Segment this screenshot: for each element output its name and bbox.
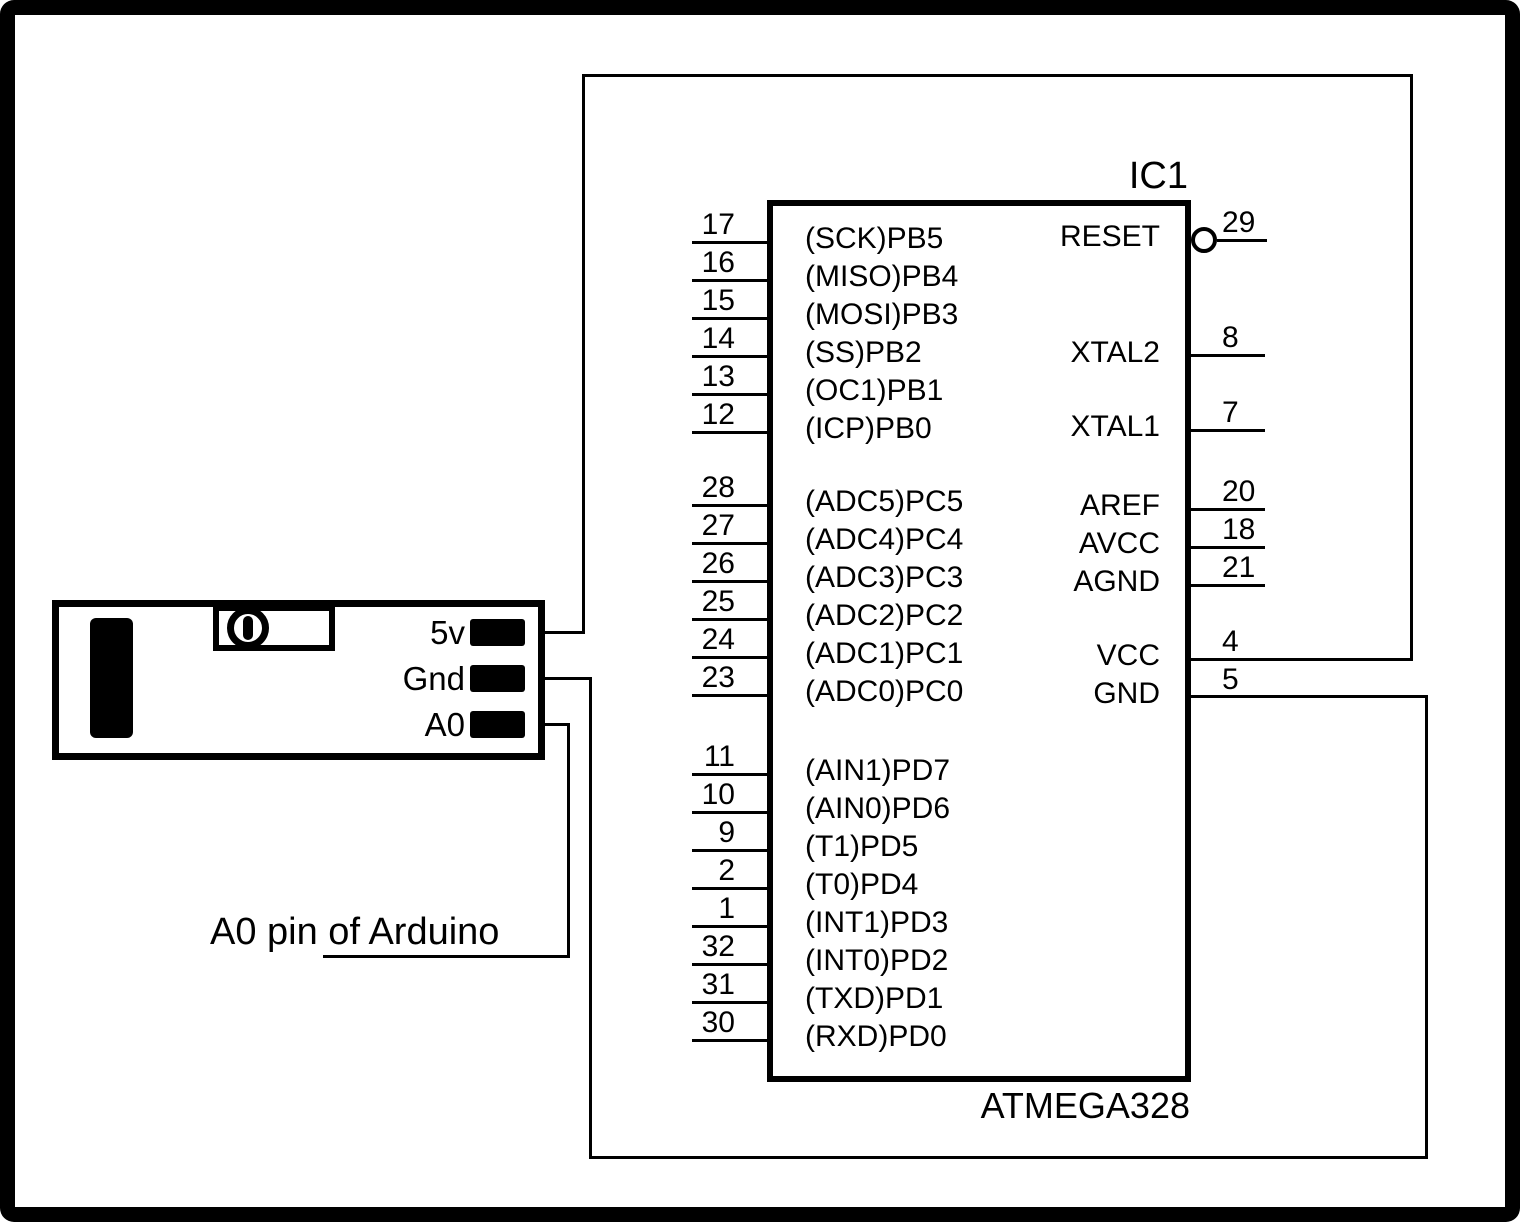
pin-line-1 (692, 925, 767, 928)
pin-number: 20 (1222, 477, 1312, 507)
pin-label: (INT0)PD2 (805, 943, 948, 979)
pin-number: 10 (655, 780, 735, 810)
potentiometer-slot-icon (243, 616, 253, 640)
pin-line-9 (692, 849, 767, 852)
wire-gnd-vertical-right (1425, 696, 1428, 1159)
module-pin-label-5v: 5v (315, 613, 465, 653)
ic-part-number: ATMEGA328 (790, 1086, 1190, 1128)
pin-label: (T0)PD4 (805, 867, 918, 903)
pin-number: 30 (655, 1008, 735, 1038)
pin-number: 29 (1222, 208, 1312, 238)
pin-line-10 (692, 811, 767, 814)
pin-number: 31 (655, 970, 735, 1000)
pin-number: 27 (655, 511, 735, 541)
pin-number: 21 (1222, 553, 1312, 583)
pin-label: (T1)PD5 (805, 829, 918, 865)
wire-gnd-bottom (589, 1156, 1428, 1159)
wire-a0-pointer (323, 955, 570, 958)
schematic-canvas: IC1 ATMEGA328 17 16 15 14 13 12 28 27 26… (0, 0, 1520, 1222)
pin-line-25 (692, 618, 767, 621)
module-pin-label-a0: A0 (315, 705, 465, 745)
pin-line-20 (1191, 508, 1265, 511)
pin-number: 16 (655, 248, 735, 278)
pin-line-29 (1217, 239, 1267, 242)
pin-number: 25 (655, 587, 735, 617)
pin-line-17 (692, 241, 767, 244)
pin-number: 2 (655, 856, 735, 886)
pin-line-31 (692, 1001, 767, 1004)
wire-vcc-vertical (1410, 74, 1413, 660)
pin-label: (MOSI)PB3 (805, 297, 958, 333)
pin-number: 4 (1222, 627, 1312, 657)
pin-line-23 (692, 694, 767, 697)
pin-line-vcc-4 (1191, 658, 1413, 661)
pin-line-18 (1191, 546, 1265, 549)
pin-number: 18 (1222, 515, 1312, 545)
pin-line-30 (692, 1039, 767, 1042)
pin-number: 13 (655, 362, 735, 392)
pin-line-28 (692, 504, 767, 507)
pin-label: (MISO)PB4 (805, 259, 958, 295)
pin-label: (AIN0)PD6 (805, 791, 950, 827)
pin-line-8 (1191, 354, 1265, 357)
pin-number: 8 (1222, 323, 1312, 353)
wire-a0-vertical (567, 723, 570, 958)
pin-label: AVCC (860, 526, 1160, 562)
pin-line-12 (692, 431, 767, 434)
pin-number: 32 (655, 932, 735, 962)
pin-line-24 (692, 656, 767, 659)
module-pad-gnd (470, 665, 525, 692)
pin-line-13 (692, 393, 767, 396)
pin-label: (OC1)PB1 (805, 373, 943, 409)
module-pad-5v (470, 619, 525, 646)
pin-line-21 (1191, 584, 1265, 587)
pin-number: 9 (655, 818, 735, 848)
pin-label: VCC (860, 638, 1160, 674)
pin-line-11 (692, 773, 767, 776)
reset-active-low-bubble-icon (1191, 227, 1217, 253)
pin-label: (ADC2)PC2 (805, 598, 963, 634)
pin-number: 11 (655, 742, 735, 772)
pin-line-2 (692, 887, 767, 890)
pin-line-15 (692, 317, 767, 320)
pin-label: (RXD)PD0 (805, 1019, 947, 1055)
pin-number: 7 (1222, 398, 1312, 428)
annotation-a0-pin: A0 pin of Arduino (210, 910, 499, 954)
pin-number: 14 (655, 324, 735, 354)
pin-number: 28 (655, 473, 735, 503)
pin-label: AREF (860, 488, 1160, 524)
pin-number: 15 (655, 286, 735, 316)
pin-line-26 (692, 580, 767, 583)
pin-number: 23 (655, 663, 735, 693)
pin-line-14 (692, 355, 767, 358)
pin-label: (AIN1)PD7 (805, 753, 950, 789)
pin-label: AGND (860, 564, 1160, 600)
pin-line-7 (1191, 429, 1265, 432)
pin-label: XTAL1 (860, 409, 1160, 445)
pin-number: 24 (655, 625, 735, 655)
pin-line-27 (692, 542, 767, 545)
module-pad-a0 (470, 711, 525, 738)
wire-5v-vertical (582, 74, 585, 634)
ic-designator: IC1 (988, 156, 1188, 196)
pin-label: RESET (860, 219, 1160, 255)
pin-label: GND (860, 676, 1160, 712)
pin-number: 12 (655, 400, 735, 430)
wire-5v-top (582, 74, 1413, 77)
pin-number: 17 (655, 210, 735, 240)
wire-gnd-vertical-left (589, 677, 592, 1159)
pin-number: 5 (1222, 665, 1312, 695)
pin-number: 1 (655, 894, 735, 924)
sensor-element-icon (90, 618, 133, 738)
pin-line-16 (692, 279, 767, 282)
module-pin-label-gnd: Gnd (315, 659, 465, 699)
pin-number: 26 (655, 549, 735, 579)
pin-label: XTAL2 (860, 335, 1160, 371)
pin-line-32 (692, 963, 767, 966)
pin-label: (TXD)PD1 (805, 981, 943, 1017)
pin-label: (INT1)PD3 (805, 905, 948, 941)
